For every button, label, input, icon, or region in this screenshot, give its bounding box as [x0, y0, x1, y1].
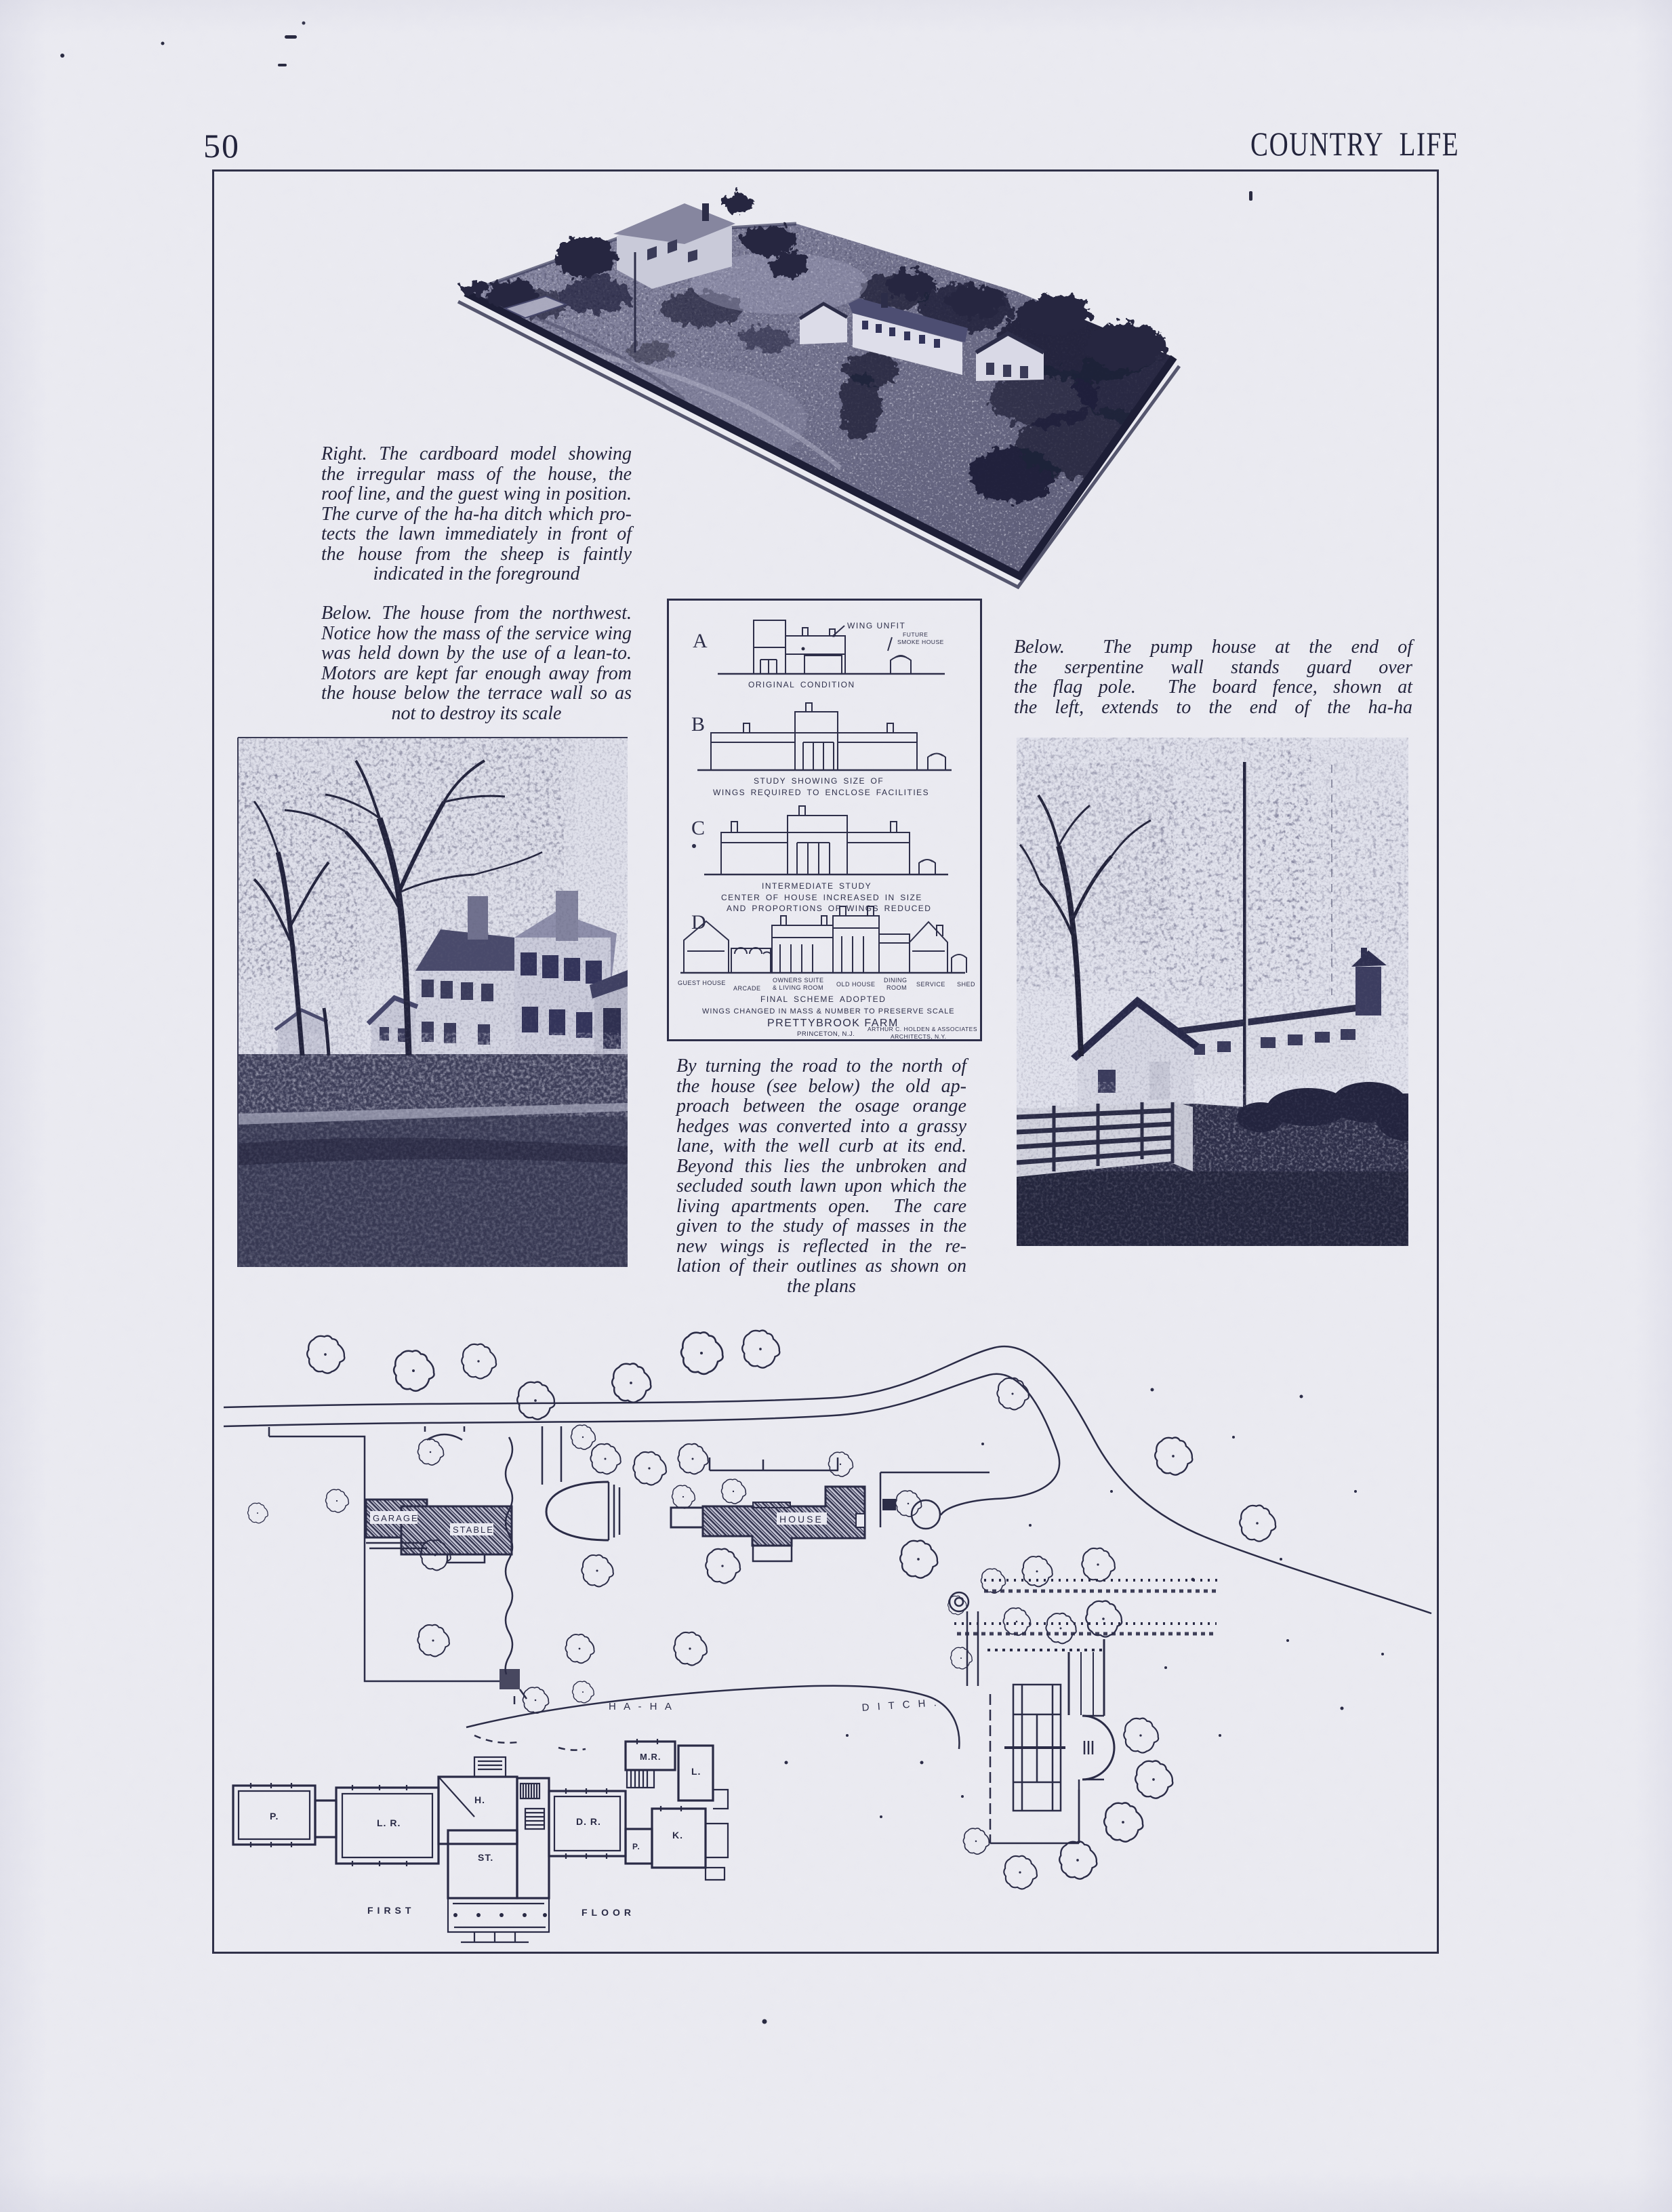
svg-text:FINAL SCHEME ADOPTED: FINAL SCHEME ADOPTED — [760, 994, 886, 1004]
svg-text:D I T C H .: D I T C H . — [861, 1697, 939, 1714]
svg-text:SMOKE HOUSE: SMOKE HOUSE — [897, 639, 944, 645]
svg-text:INTERMEDIATE STUDY: INTERMEDIATE STUDY — [762, 881, 872, 891]
svg-text:AND PROPORTIONS OF WINGS REDUC: AND PROPORTIONS OF WINGS REDUCED — [727, 904, 931, 913]
svg-text:K.: K. — [672, 1830, 683, 1841]
svg-text:& LIVING ROOM: & LIVING ROOM — [773, 984, 823, 991]
svg-text:OWNERS SUITE: OWNERS SUITE — [773, 977, 824, 984]
svg-text:A: A — [693, 630, 708, 652]
svg-text:L.: L. — [691, 1766, 701, 1777]
svg-text:ST.: ST. — [478, 1852, 493, 1863]
svg-text:ARTHUR C. HOLDEN & ASSOCIATES: ARTHUR C. HOLDEN & ASSOCIATES — [868, 1026, 977, 1032]
svg-text:WINGS REQUIRED TO ENCLOSE FACI: WINGS REQUIRED TO ENCLOSE FACILITIES — [713, 788, 929, 797]
svg-text:STABLE: STABLE — [453, 1525, 494, 1535]
svg-text:STUDY SHOWING SIZE OF: STUDY SHOWING SIZE OF — [754, 776, 884, 786]
svg-text:M.R.: M.R. — [640, 1752, 661, 1762]
svg-text:P.: P. — [632, 1842, 640, 1851]
svg-text:FIRST: FIRST — [367, 1905, 415, 1916]
svg-text:GARAGE: GARAGE — [373, 1513, 419, 1523]
svg-text:P.: P. — [270, 1811, 279, 1822]
svg-text:D: D — [691, 911, 706, 933]
svg-text:ARCHITECTS, N.Y.: ARCHITECTS, N.Y. — [891, 1033, 946, 1040]
svg-text:HOUSE: HOUSE — [779, 1514, 823, 1525]
svg-text:ORIGINAL CONDITION: ORIGINAL CONDITION — [748, 680, 855, 689]
svg-text:ARCADE: ARCADE — [733, 985, 761, 992]
svg-text:WINGS CHANGED IN MASS & NUMBER: WINGS CHANGED IN MASS & NUMBER TO PRESER… — [702, 1007, 955, 1015]
svg-text:WING UNFIT: WING UNFIT — [847, 621, 905, 630]
svg-text:B: B — [691, 713, 705, 736]
svg-text:H.: H. — [474, 1794, 485, 1805]
svg-text:FUTURE: FUTURE — [903, 631, 928, 638]
svg-text:D. R.: D. R. — [576, 1816, 601, 1827]
svg-text:L. R.: L. R. — [377, 1817, 401, 1828]
svg-text:DINING: DINING — [884, 977, 908, 984]
svg-text:C: C — [691, 817, 705, 839]
svg-text:OLD HOUSE: OLD HOUSE — [836, 981, 876, 988]
svg-text:GUEST HOUSE: GUEST HOUSE — [678, 980, 726, 986]
svg-text:SHED: SHED — [957, 981, 975, 988]
svg-text:FLOOR: FLOOR — [582, 1907, 635, 1918]
svg-text:SERVICE: SERVICE — [916, 981, 945, 988]
svg-text:PRINCETON, N.J.: PRINCETON, N.J. — [797, 1030, 855, 1038]
svg-text:ROOM: ROOM — [886, 984, 907, 991]
svg-text:H A - H A: H A - H A — [609, 1701, 674, 1712]
svg-text:CENTER OF HOUSE INCREASED IN S: CENTER OF HOUSE INCREASED IN SIZE — [721, 893, 922, 902]
